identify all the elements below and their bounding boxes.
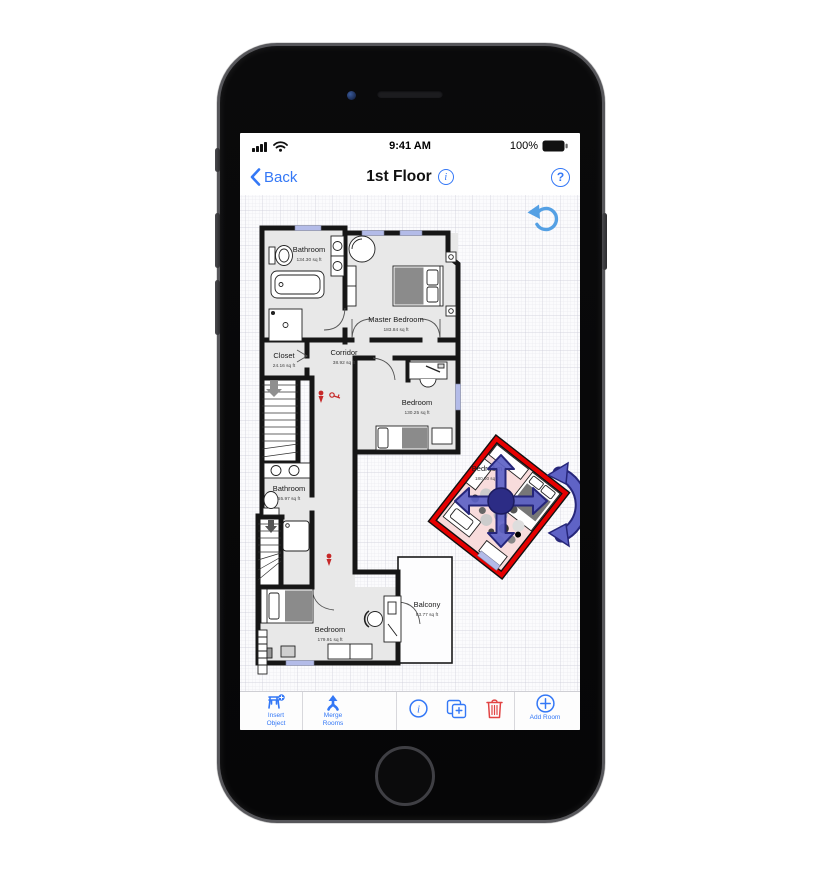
status-bar: 9:41 AM 100% [240,133,580,159]
editing-toolbar: Insert Object Merge Rooms i [240,691,580,730]
room-label: Bedroom [315,625,345,634]
room-label: Balcony [414,600,441,609]
power-button [602,213,607,270]
front-camera [347,91,356,100]
room-area: 179.91 sq ft [317,637,343,643]
room-area: 55.97 sq ft [278,496,301,502]
room-area: 134.30 sq ft [296,257,322,263]
duplicate-icon [446,699,467,719]
toolbar-separator [302,692,303,730]
toolbar-separator [396,692,397,730]
merge-rooms-label-1: Merge [324,712,342,719]
room-label: Master Bedroom [368,315,423,324]
floorplan-canvas[interactable]: Bathroom 134.30 sq ft Master Bedroom 183… [240,195,580,691]
svg-text:i: i [416,703,419,715]
back-button[interactable]: Back [250,168,297,186]
signal-strength-icon [252,141,269,152]
floor-info-button[interactable]: i [438,169,454,185]
room-area: 24.16 sq ft [273,363,296,369]
insert-object-icon [266,694,286,711]
room-info-button[interactable]: i [407,699,429,718]
back-label: Back [264,169,297,186]
delete-room-button[interactable] [482,698,506,719]
room-area: 130.25 sq ft [404,410,430,416]
insert-object-button[interactable]: Insert Object [254,694,298,727]
volume-down-button [215,280,220,335]
mute-switch [215,148,220,172]
wifi-icon [273,141,288,152]
battery-icon [542,140,568,152]
room-label: Bathroom [273,484,306,493]
trash-icon [486,698,503,719]
merge-rooms-icon [324,694,342,711]
merge-rooms-label-2: Rooms [323,720,344,727]
room-label: Bathroom [293,245,326,254]
home-button[interactable] [375,746,435,806]
iphone-frame: 9:41 AM 100% Back 1st Floor i ? [217,43,605,823]
room-label: Corridor [330,348,358,357]
app-screen: 9:41 AM 100% Back 1st Floor i ? [240,133,580,730]
add-room-icon [536,694,555,713]
back-chevron-icon [250,168,261,186]
room-area: 38.92 sq ft [333,360,356,366]
volume-up-button [215,213,220,268]
add-room-label: Add Room [530,714,561,721]
toolbar-separator [514,692,515,730]
insert-object-label-1: Insert [268,712,284,719]
status-time: 9:41 AM [342,140,478,152]
battery-percent: 100% [510,140,538,152]
duplicate-room-button[interactable] [444,699,468,719]
help-button[interactable]: ? [551,168,570,187]
room-label: Bedroom [402,398,432,407]
page-title: 1st Floor [366,168,431,186]
earpiece-speaker [377,90,443,98]
floorplan-svg[interactable]: Bathroom 134.30 sq ft Master Bedroom 183… [240,195,580,691]
info-icon: i [409,699,428,718]
room-area: 83.77 sq ft [416,612,439,618]
add-room-button[interactable]: Add Room [523,694,567,721]
room-area: 183.84 sq ft [383,327,409,333]
merge-rooms-button[interactable]: Merge Rooms [312,694,354,727]
page: { "status": { "time": "9:41 AM", "batter… [0,0,820,871]
navigation-bar: Back 1st Floor i ? [240,159,580,195]
insert-object-label-2: Object [267,720,286,727]
room-label: Closet [273,351,295,360]
